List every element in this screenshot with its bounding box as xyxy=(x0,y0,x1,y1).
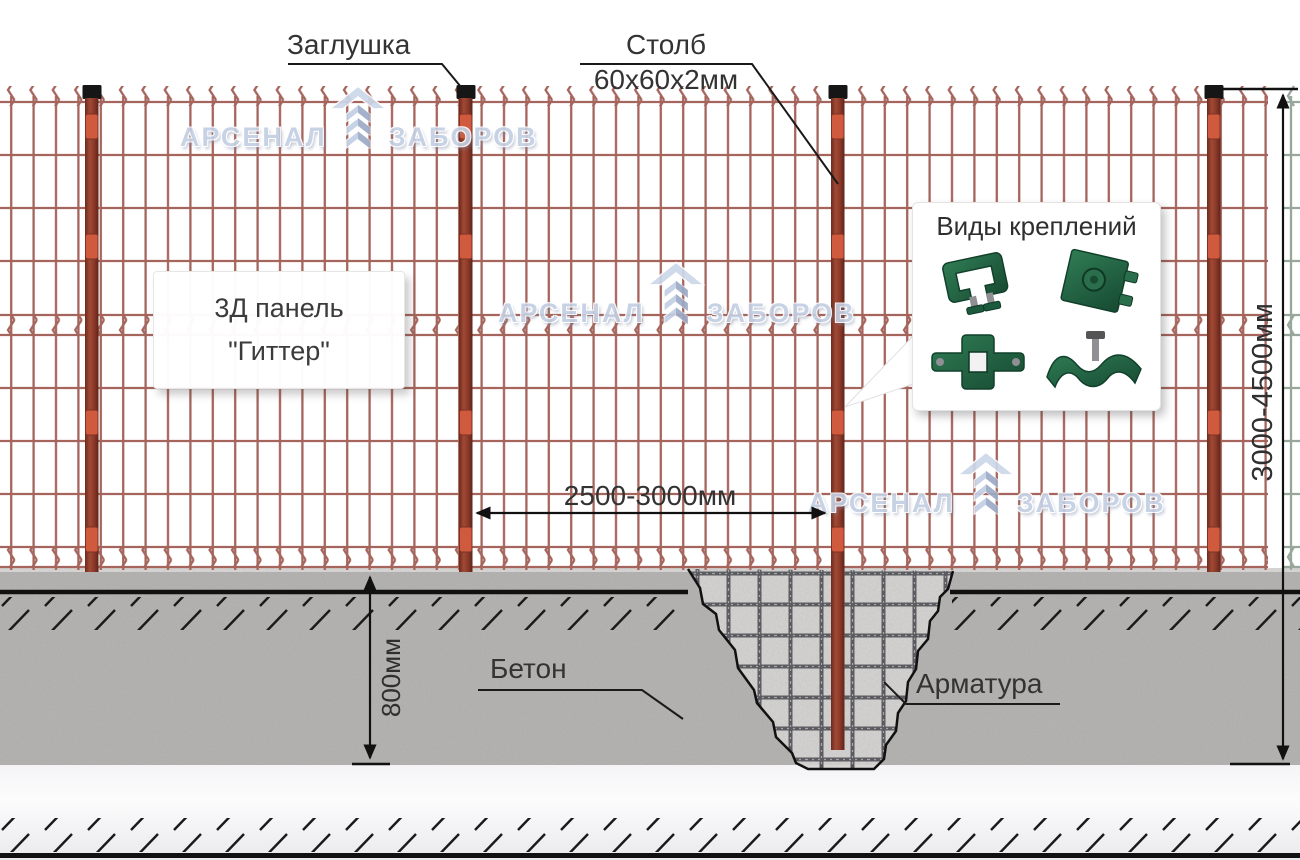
fasteners-title: Виды креплений xyxy=(936,211,1136,242)
cross-bracket-fastener-icon xyxy=(926,327,1030,401)
post-cap-icon xyxy=(457,85,476,99)
cap-label: Заглушка xyxy=(287,29,410,60)
post-label-title: Столб xyxy=(575,29,757,60)
rebar-label: Арматура xyxy=(916,668,1042,699)
fasteners-callout: Виды креплений xyxy=(912,202,1161,411)
wave-clamp-fastener-icon xyxy=(1043,327,1147,401)
mesh-bend-row-2 xyxy=(5,547,1268,567)
post-label-size: 60х60х2мм xyxy=(575,64,757,95)
panel-label-line1: 3Д панель xyxy=(214,293,343,324)
foundation-depth-label: 800мм xyxy=(376,638,407,717)
post-cap-icon xyxy=(1205,85,1224,99)
diagram-base-graphics xyxy=(0,0,1300,860)
concrete-label: Бетон xyxy=(490,653,567,684)
panel-label-box: 3Д панель "Гиттер" xyxy=(153,271,405,389)
subsoil-band xyxy=(0,765,1300,860)
post-label: Столб 60х60х2мм xyxy=(575,29,757,95)
post-spacing-label: 2500-3000мм xyxy=(500,480,800,511)
fence-installation-diagram: АРСЕНАЛ ЗАБОРОВ АРСЕНАЛ xyxy=(0,0,1300,860)
plate-fastener-icon xyxy=(1043,247,1147,321)
post-cap-icon xyxy=(829,85,848,99)
post-cap-icon xyxy=(83,85,102,99)
panel-label-line2: "Гиттер" xyxy=(228,336,330,367)
ground-line xyxy=(0,592,1300,630)
fasteners-grid xyxy=(913,242,1160,410)
fence-height-label: 3000-4500мм xyxy=(1247,303,1280,482)
u-bracket-fastener-icon xyxy=(926,247,1030,321)
bottom-hatching xyxy=(0,818,1300,852)
